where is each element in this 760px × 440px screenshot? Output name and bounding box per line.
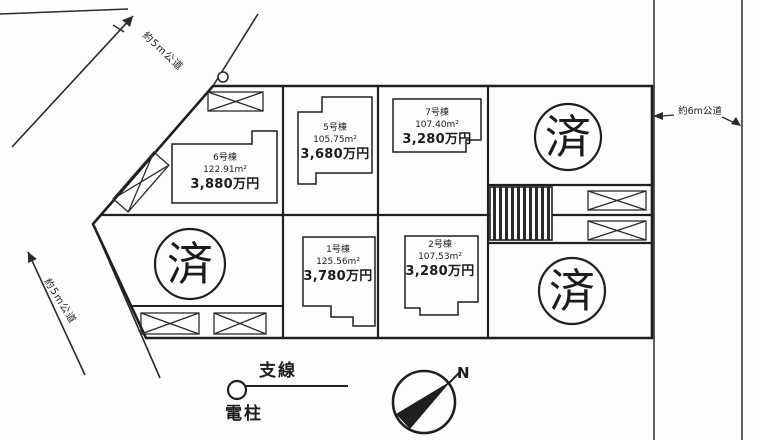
lot-area: 125.56m² — [316, 257, 360, 267]
road-edge-line — [28, 252, 85, 375]
road-edge-line — [12, 16, 133, 147]
sold-stamp-text: 済 — [549, 264, 595, 318]
lot-name: 1号棟 — [326, 243, 350, 255]
plot-map-sheet: 約5m公道 約5m公道 約6m公道 — [0, 0, 760, 440]
lot-name: 7号棟 — [425, 106, 449, 118]
lot-name: 6号棟 — [213, 151, 237, 163]
utility-pole-icon — [228, 381, 246, 399]
scan-border-fragment — [0, 9, 128, 14]
road-northwest-label: 約5m公道 — [140, 29, 186, 73]
lot-price: 3,280万円 — [402, 132, 471, 147]
compass-needle-icon — [396, 381, 451, 429]
road-east: 約6m公道 — [653, 0, 742, 440]
lot-area: 105.75m² — [313, 135, 357, 145]
legend-utility-pole: 支線 電柱 — [225, 360, 348, 424]
lot-area: 107.40m² — [415, 120, 459, 130]
lot-price: 3,680万円 — [300, 147, 369, 162]
road-east-label: 約6m公道 — [678, 105, 722, 117]
lot-area: 122.91m² — [203, 165, 247, 175]
compass: N — [393, 364, 470, 433]
lot-area: 107.53m² — [418, 252, 462, 262]
lot-price: 3,780万円 — [303, 269, 372, 284]
plot-map-drawing: 約5m公道 約5m公道 約6m公道 — [0, 0, 760, 440]
steps-hatch-area — [490, 187, 552, 240]
road-southwest-label: 約5m公道 — [41, 276, 79, 326]
sold-stamp-text: 済 — [167, 237, 213, 291]
lot-price: 3,280万円 — [405, 264, 474, 279]
lot-name: 5号棟 — [323, 121, 347, 133]
road-arrow-line — [662, 115, 674, 116]
utility-pole-label: 電柱 — [225, 403, 263, 424]
lot-name: 2号棟 — [428, 238, 452, 250]
north-label: N — [457, 364, 470, 382]
lot-price: 3,880万円 — [190, 177, 259, 192]
guy-wire-label: 支線 — [259, 360, 297, 381]
utility-pole-icon — [218, 72, 228, 82]
sold-stamp-text: 済 — [545, 110, 591, 164]
